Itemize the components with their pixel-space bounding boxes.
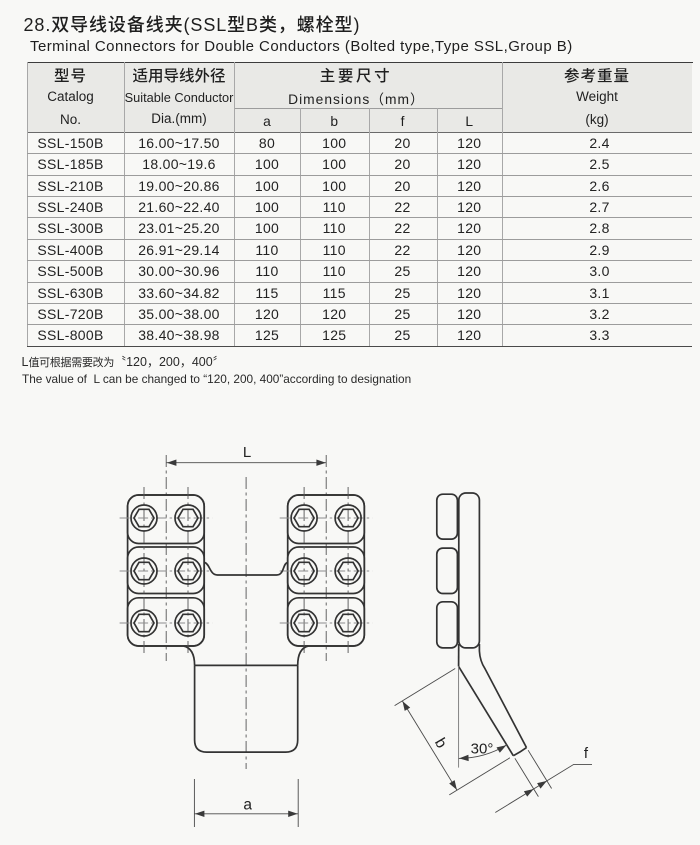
svg-text:30°: 30° bbox=[471, 741, 494, 758]
svg-text:f: f bbox=[584, 745, 589, 762]
svg-text:b: b bbox=[431, 735, 450, 751]
svg-text:L: L bbox=[243, 444, 251, 461]
svg-text:a: a bbox=[243, 797, 252, 814]
